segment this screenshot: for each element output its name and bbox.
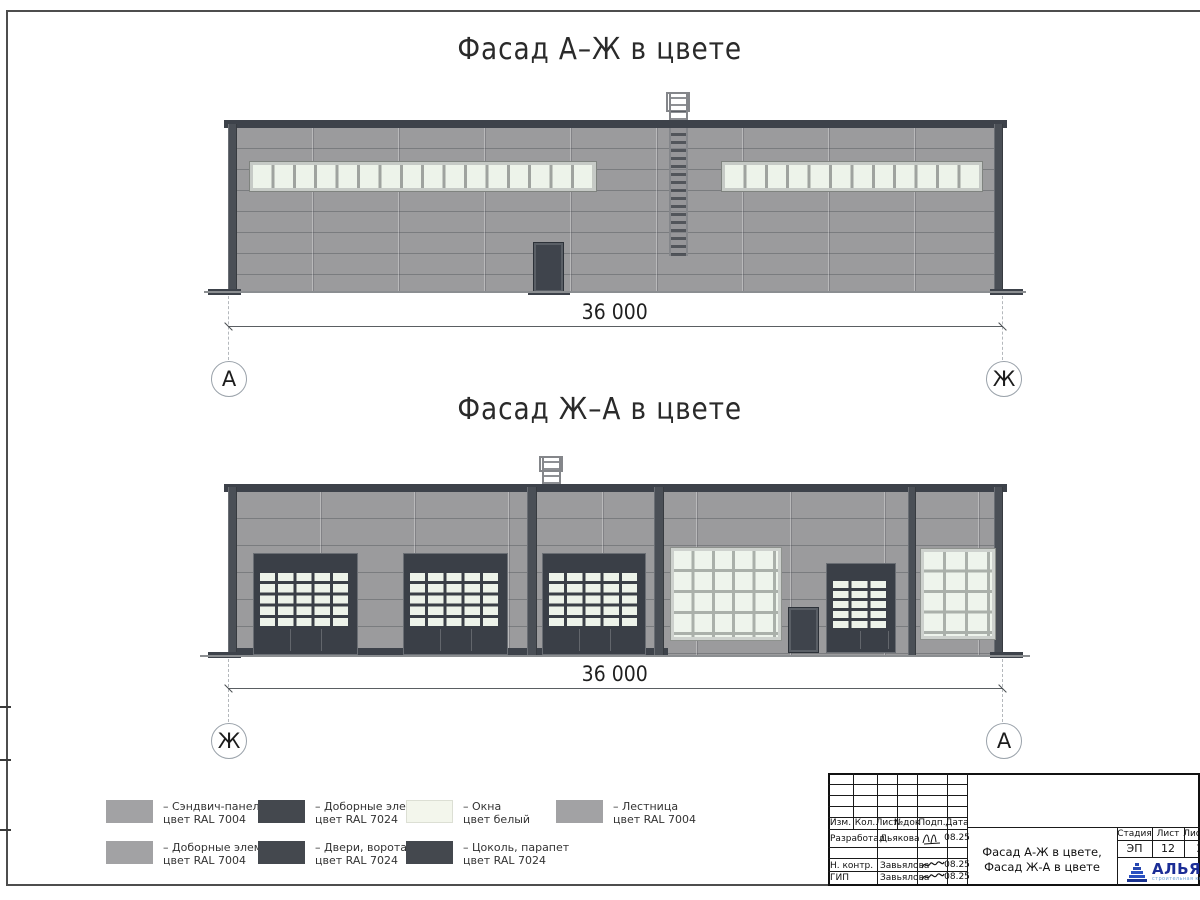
logo-text: АЛЬЯН <box>1152 862 1200 876</box>
frame-tick <box>0 829 11 831</box>
logo-subtext: строительная комп <box>1152 876 1200 882</box>
legend-swatch-lestnitsa <box>556 800 603 823</box>
legend-swatch-dobornye-7004 <box>106 841 153 864</box>
legend-line: цвет белый <box>463 813 530 826</box>
col-header-podp: Подп. <box>917 817 947 829</box>
role-gip: ГИП <box>830 873 849 883</box>
legend-label: – Лестница цвет RAL 7004 <box>613 800 696 826</box>
axis-marker-zh: Ж <box>211 723 247 759</box>
gate-bottom-panel <box>410 629 501 651</box>
grid-line <box>828 795 967 796</box>
parapet-bottom <box>224 484 1007 492</box>
col-header-kol: Кол. <box>853 817 877 829</box>
column <box>527 487 537 655</box>
gate-glass <box>410 573 501 629</box>
col-header-izm: Изм. <box>828 817 853 829</box>
axis-letter: Ж <box>218 729 241 753</box>
ribbon-window-glass <box>725 165 979 188</box>
dimension-value: 36 000 <box>540 662 690 686</box>
legend-swatch-dobornye-7024 <box>258 800 305 823</box>
grid-line <box>828 784 967 785</box>
corner-column-right <box>994 124 1003 291</box>
axis-marker-a: А <box>986 723 1022 759</box>
role-razrabotal: Разработал <box>830 834 885 844</box>
legend-label: – Окна цвет белый <box>463 800 530 826</box>
gate-glass <box>260 573 351 629</box>
ground-line <box>200 655 1030 657</box>
legend-label: – Цоколь, парапет цвет RAL 7024 <box>463 841 569 867</box>
dimension-value-text: 36 000 <box>582 300 648 324</box>
ribbon-window-left <box>249 161 597 192</box>
signature-icon <box>920 859 946 871</box>
doc-title-line1: Фасад А-Ж в цвете, <box>982 845 1102 860</box>
axis-letter: А <box>997 729 1011 753</box>
legend-swatch-sandwich <box>106 800 153 823</box>
axis-letter: Ж <box>993 367 1016 391</box>
col-header-data: Дата <box>947 817 967 829</box>
doc-title: Фасад А-Ж в цвете, Фасад Ж-А в цвете <box>967 840 1117 880</box>
drawing-sheet: Фасад А–Ж в цвете 36 00 <box>0 0 1200 900</box>
sectional-gate-2 <box>403 553 508 655</box>
legend-swatch-okna <box>406 800 453 823</box>
date-cell: 08.25 <box>947 832 967 844</box>
frame-top <box>6 10 1200 12</box>
role-nkontr: Н. контр. <box>830 861 873 871</box>
right-window <box>920 548 996 640</box>
parapet-top <box>224 120 1007 128</box>
elevation-bottom-title: Фасад Ж–А в цвете <box>0 392 1200 427</box>
legend-line: цвет RAL 7024 <box>463 854 569 867</box>
grid-line <box>1117 857 1200 858</box>
sheets-label: Листов <box>1184 827 1200 840</box>
grid-line <box>828 829 967 830</box>
frame-tick <box>0 706 11 708</box>
large-window <box>670 547 782 641</box>
ribbon-window-glass <box>253 165 593 188</box>
grid-line <box>828 847 967 848</box>
corner-column-left <box>228 124 237 291</box>
sectional-gate-3 <box>542 553 646 655</box>
column <box>654 487 664 655</box>
legend-line: – Цоколь, парапет <box>463 841 569 854</box>
legend-line: – Двери, ворота <box>315 841 407 854</box>
date-cell: 08.25 <box>947 859 967 871</box>
entrance-door <box>533 242 564 293</box>
large-window-glass <box>674 551 778 637</box>
ground-line <box>204 291 1026 293</box>
doc-title-line2: Фасад Ж-А в цвете <box>984 860 1100 875</box>
sectional-gate-1 <box>253 553 358 655</box>
logo-pyramid-icon <box>1126 862 1148 882</box>
grid-line <box>828 806 967 807</box>
side-door <box>788 607 819 653</box>
dimension-line <box>228 688 1003 689</box>
stage-value: ЭП <box>1117 840 1152 857</box>
elevation-top-title: Фасад А–Ж в цвете <box>0 32 1200 67</box>
legend-swatch-dveri <box>258 841 305 864</box>
company-logo: АЛЬЯН строительная комп <box>1126 862 1200 882</box>
legend-line: цвет RAL 7004 <box>163 813 267 826</box>
legend-line: – Сэндвич-панели <box>163 800 267 813</box>
wall-panels <box>228 128 1003 291</box>
logo-text-wrap: АЛЬЯН строительная комп <box>1152 862 1200 882</box>
dimension-value-text: 36 000 <box>582 662 648 686</box>
name-dyakova: Дьякова <box>880 834 920 844</box>
gate-bottom-panel <box>260 629 351 651</box>
stage-label: Стадия <box>1117 827 1152 840</box>
gate-glass <box>833 581 889 631</box>
legend-label: – Сэндвич-панели цвет RAL 7004 <box>163 800 267 826</box>
col-header-ndok: №док <box>897 817 917 829</box>
axis-letter: А <box>222 367 236 391</box>
sheet-value: 12 <box>1152 840 1184 857</box>
gate-bottom-panel <box>549 629 640 651</box>
elevation-bottom-title-text: Фасад Ж–А в цвете <box>458 392 743 427</box>
date-cell: 08.25 <box>947 871 967 883</box>
gate-glass <box>549 573 640 629</box>
legend-label: – Двери, ворота цвет RAL 7024 <box>315 841 407 867</box>
legend-line: – Окна <box>463 800 530 813</box>
signature-icon <box>920 871 946 883</box>
legend-line: – Лестница <box>613 800 696 813</box>
legend-line: цвет RAL 7024 <box>315 854 407 867</box>
sheets-value: 2 <box>1184 840 1200 857</box>
dimension-line <box>228 326 1003 327</box>
frame-left <box>6 10 8 886</box>
column <box>908 487 916 655</box>
corner-column-left <box>228 487 237 655</box>
gate-bottom-panel <box>833 631 889 649</box>
signature-icon <box>920 830 946 846</box>
wall-ladder-icon <box>669 128 688 256</box>
legend-line: цвет RAL 7004 <box>613 813 696 826</box>
small-gate <box>826 563 896 653</box>
frame-tick <box>0 759 11 761</box>
right-window-glass <box>924 552 992 636</box>
ribbon-window-right <box>721 161 983 192</box>
dimension-value: 36 000 <box>540 300 690 324</box>
sheet-label: Лист <box>1152 827 1184 840</box>
legend-swatch-tsokol <box>406 841 453 864</box>
elevation-top-title-text: Фасад А–Ж в цвете <box>458 32 743 67</box>
